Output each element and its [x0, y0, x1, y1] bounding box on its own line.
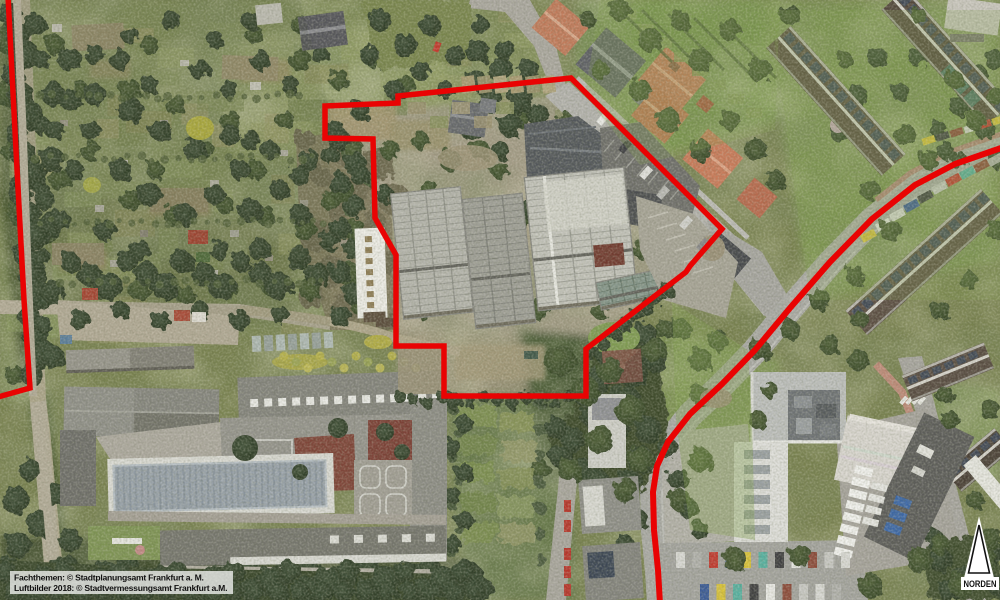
svg-text:Luftbilder 2018: © Stadtvermes: Luftbilder 2018: © Stadtvermessungsamt F… [14, 583, 227, 593]
svg-text:Fachthemen: © Stadtplanungsamt: Fachthemen: © Stadtplanungsamt Frankfurt… [14, 573, 204, 583]
svg-text:NORDEN: NORDEN [964, 579, 997, 590]
